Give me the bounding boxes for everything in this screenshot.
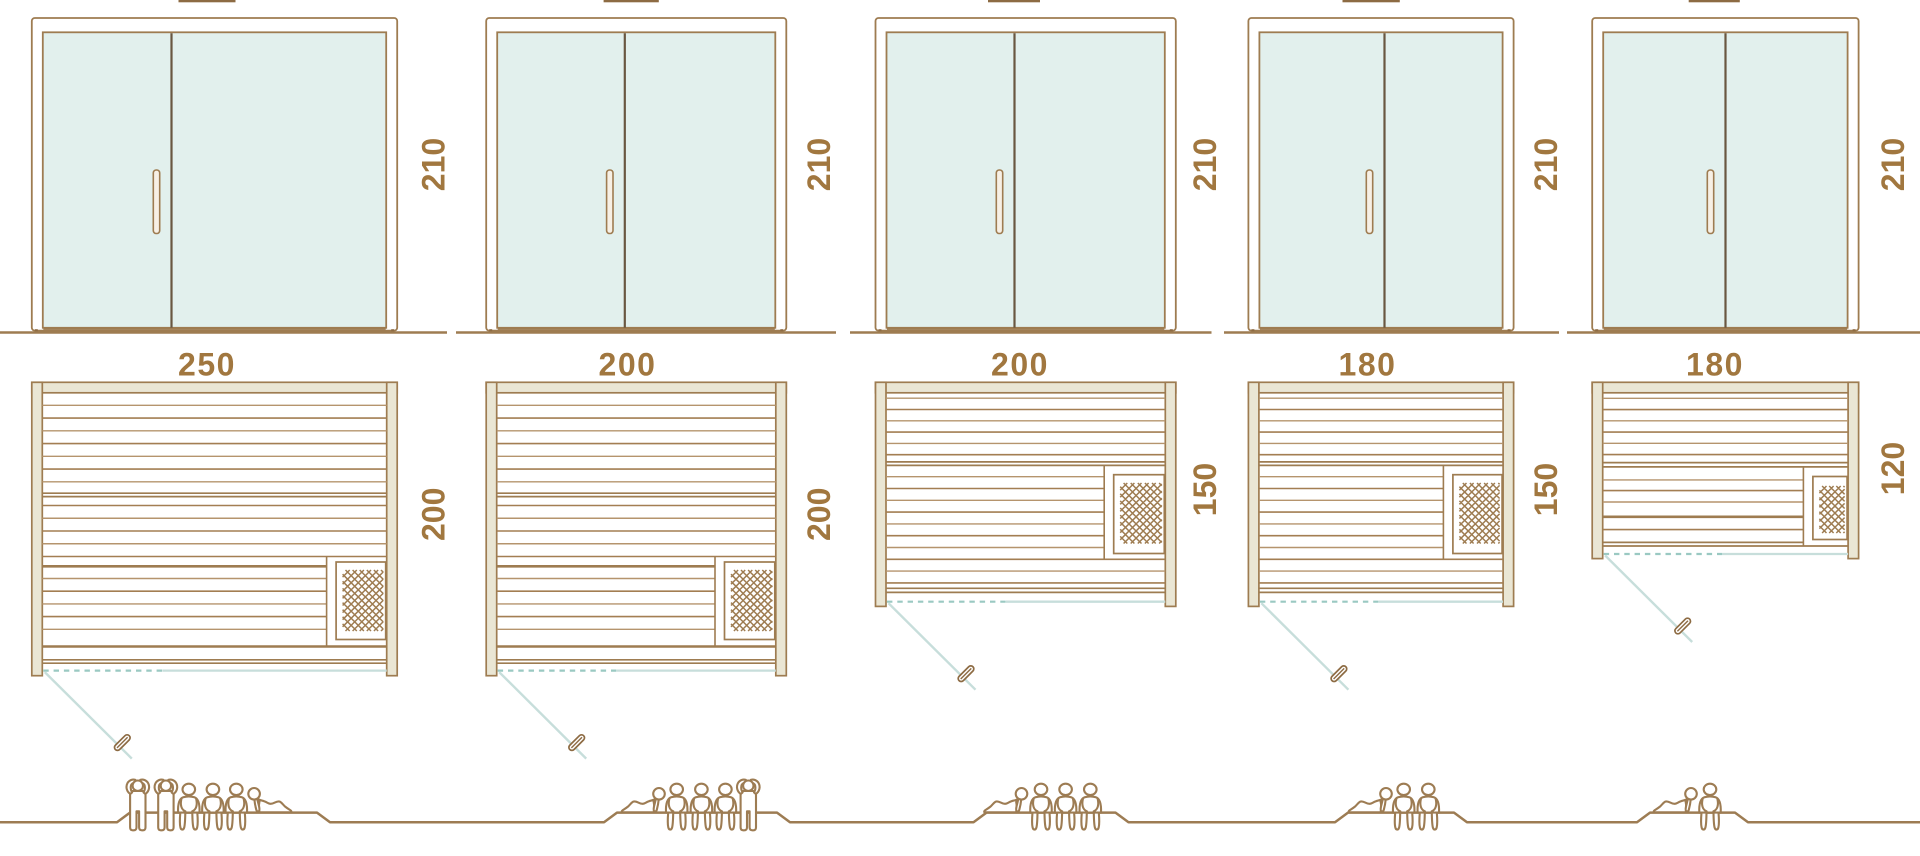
- svg-text:210: 210: [1528, 138, 1564, 191]
- svg-text:210: 210: [1875, 138, 1911, 191]
- svg-text:150: 150: [1187, 463, 1223, 516]
- svg-text:120: 120: [1875, 442, 1911, 495]
- svg-text:200: 200: [801, 488, 837, 541]
- svg-text:210: 210: [1187, 138, 1223, 191]
- svg-text:180: 180: [1686, 347, 1744, 383]
- svg-text:210: 210: [416, 138, 452, 191]
- svg-text:180: 180: [1339, 347, 1397, 383]
- svg-text:200: 200: [599, 347, 657, 383]
- svg-text:250: 250: [178, 347, 236, 383]
- svg-text:210: 210: [801, 138, 837, 191]
- svg-text:200: 200: [416, 488, 452, 541]
- svg-text:200: 200: [991, 347, 1049, 383]
- svg-text:150: 150: [1528, 463, 1564, 516]
